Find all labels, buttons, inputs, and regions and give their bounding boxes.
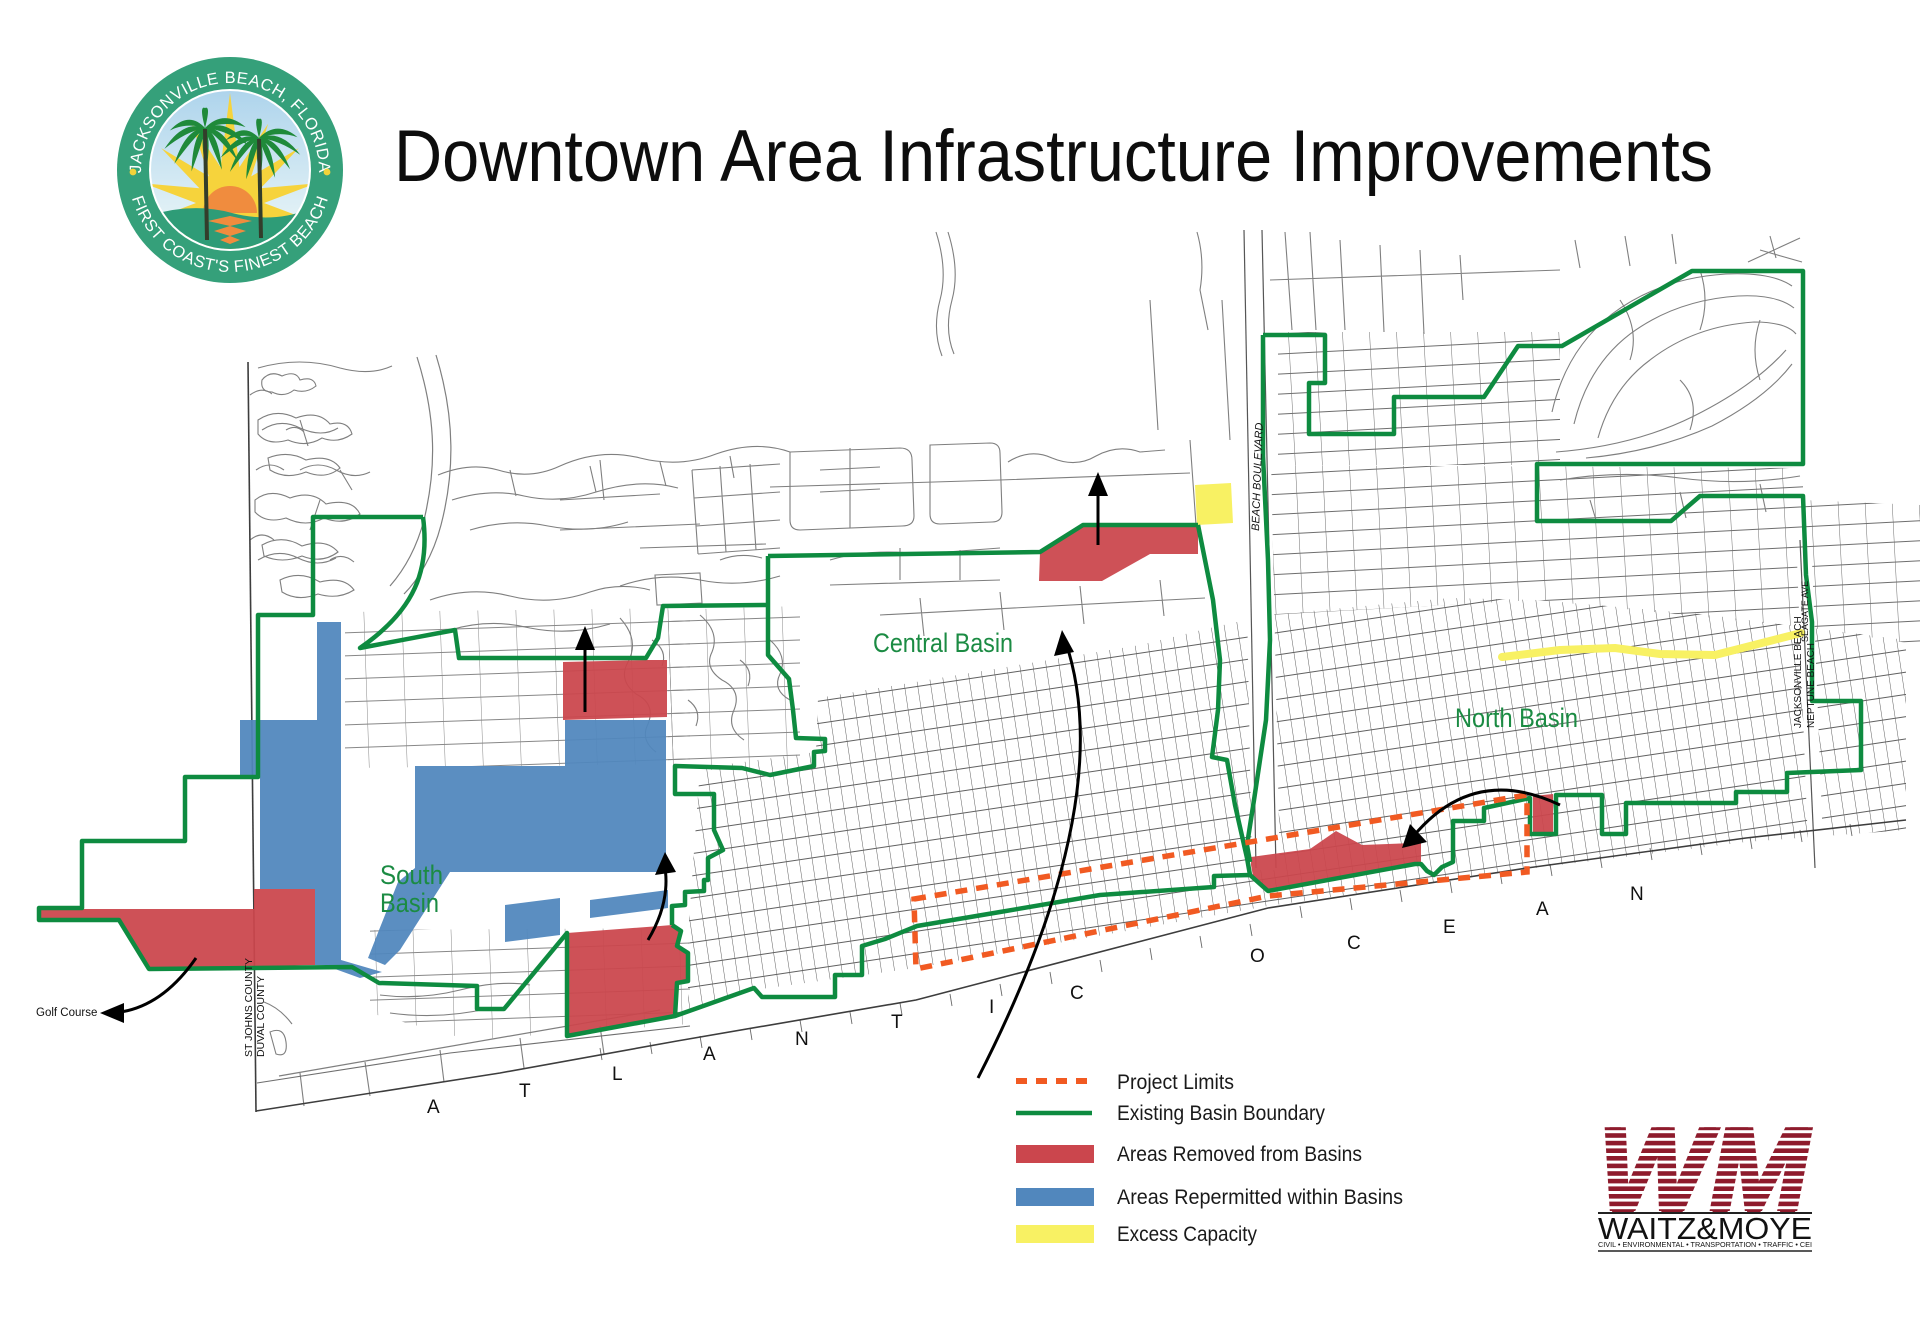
svg-text:Basin: Basin <box>380 888 439 918</box>
svg-text:L: L <box>612 1064 623 1085</box>
svg-text:ST JOHNS COUNTY: ST JOHNS COUNTY <box>243 958 255 1057</box>
svg-text:A: A <box>703 1044 716 1065</box>
svg-text:A: A <box>1536 899 1549 920</box>
svg-text:DUVAL COUNTY: DUVAL COUNTY <box>255 976 267 1057</box>
svg-text:CIVIL • ENVIRONMENTAL • TR: CIVIL • ENVIRONMENTAL • TRANSPORTATION •… <box>1598 1240 1812 1249</box>
svg-text:Golf Course: Golf Course <box>36 1007 97 1019</box>
svg-text:Excess Capacity: Excess Capacity <box>1117 1222 1257 1246</box>
svg-text:Project Limits: Project Limits <box>1117 1070 1234 1094</box>
svg-text:A: A <box>427 1097 440 1118</box>
svg-text:T: T <box>891 1012 903 1033</box>
svg-text:I: I <box>989 997 994 1018</box>
svg-text:C: C <box>1347 933 1361 954</box>
svg-text:C: C <box>1070 983 1084 1004</box>
svg-text:North Basin: North Basin <box>1455 703 1578 733</box>
svg-text:T: T <box>519 1081 531 1102</box>
svg-text:Central Basin: Central Basin <box>873 628 1013 658</box>
svg-text:SEAGATE AVE: SEAGATE AVE <box>1800 581 1810 642</box>
svg-text:O: O <box>1250 946 1265 967</box>
svg-text:Areas Repermitted within Basin: Areas Repermitted within Basins <box>1117 1185 1403 1209</box>
svg-text:Downtown Area Infrastructure I: Downtown Area Infrastructure Improvement… <box>394 116 1713 197</box>
svg-text:N: N <box>795 1029 809 1050</box>
svg-text:N: N <box>1630 884 1644 905</box>
svg-text:E: E <box>1443 917 1456 938</box>
svg-text:Areas Removed from Basins: Areas Removed from Basins <box>1117 1142 1362 1166</box>
svg-text:South: South <box>380 860 443 890</box>
svg-text:Existing Basin Boundary: Existing Basin Boundary <box>1117 1101 1325 1125</box>
svg-text:NEPTUNE BEACH: NEPTUNE BEACH <box>1806 643 1817 728</box>
